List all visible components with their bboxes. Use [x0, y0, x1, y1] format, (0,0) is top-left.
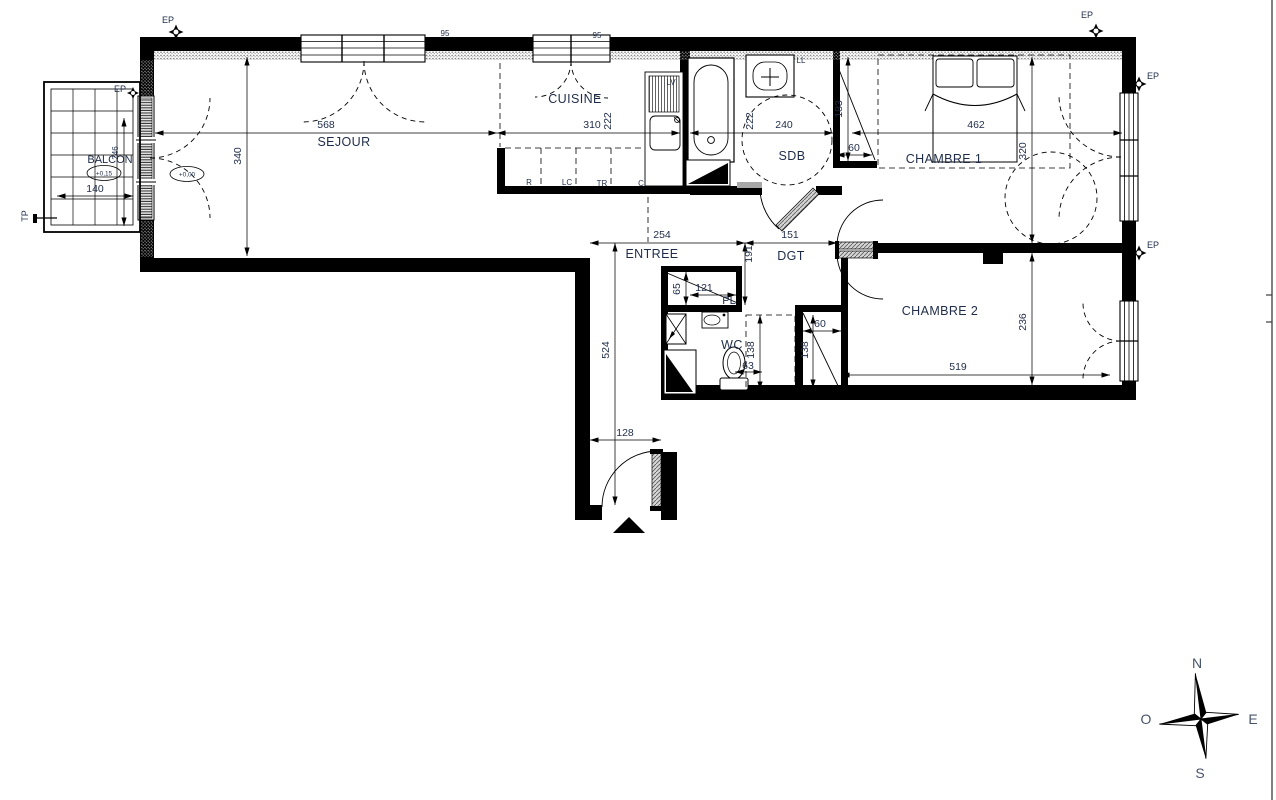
tag-refrigerator: R [526, 178, 532, 187]
level-balcon: +0,15 [96, 171, 113, 178]
dim-closet2-width: 60 [814, 318, 826, 330]
door-leaf-chambre1 [837, 242, 877, 249]
dim-cuisine-width: 310 [583, 119, 601, 131]
chambre1-window-swing [1059, 95, 1121, 219]
pillow [977, 59, 1014, 87]
tag-tr: TR [597, 179, 608, 188]
dim-balcon-width: 140 [86, 183, 104, 195]
floor-plan-sheet: TP [0, 0, 1276, 800]
dim-sdb-width: 240 [775, 119, 793, 131]
compass-south-label: S [1195, 765, 1204, 781]
dim-chambre2-depth: 236 [1017, 313, 1029, 331]
turning-circle-chambre1 [1005, 152, 1097, 244]
floor-plan-drawing: TP [0, 0, 1276, 800]
duct-bath [686, 160, 730, 186]
washbasin-sdb [746, 55, 794, 97]
window-sejour [301, 35, 425, 62]
room-label-chambre1: CHAMBRE 1 [906, 152, 983, 166]
compass-north-label: N [1192, 655, 1202, 671]
ep-label: EP [114, 84, 126, 94]
dim-hall-depth: 524 [600, 341, 612, 359]
room-label-cuisine: CUISINE [548, 92, 602, 106]
compass-east-label: E [1248, 711, 1257, 727]
door-swing-sdb [760, 191, 779, 229]
compass-rose: N O E S [1141, 655, 1258, 781]
ep-icon [1089, 24, 1104, 39]
tag-cooker: C [638, 179, 644, 188]
threshold-sdb [737, 182, 762, 188]
door-leaf-chambre2 [837, 251, 877, 258]
tp-label: TP [20, 210, 30, 222]
turning-circle-sdb [742, 95, 832, 185]
room-label-dgt: DGT [777, 249, 805, 263]
dim-wc-depth: 138 [745, 341, 757, 359]
tag-dishwasher: LV [666, 78, 676, 87]
dim-entrance-door: 128 [616, 427, 634, 439]
room-label-sdb: SDB [779, 149, 806, 163]
washbasin-wc [702, 312, 728, 328]
dim-closet2-depth: 138 [799, 341, 811, 359]
entrance-arrow [613, 517, 645, 533]
radiator [983, 253, 1003, 264]
dim-chambre1-width: 462 [967, 119, 985, 131]
ep-label: EP [1081, 10, 1093, 20]
room-label-pl: PL [722, 295, 735, 307]
room-label-sejour: SEJOUR [317, 135, 370, 149]
dim-sejour-width: 568 [317, 119, 335, 131]
tp-marker: TP [20, 210, 57, 223]
kitchen-sink-unit [645, 72, 683, 186]
dim-sejour-depth: 340 [232, 147, 244, 165]
dim-sdb-depth: 222 [744, 112, 756, 130]
door-leaf-entrance [652, 452, 661, 509]
bed [925, 56, 1025, 162]
dim-wc-width: 63 [742, 360, 754, 372]
ep-label: EP [1147, 240, 1159, 250]
dim-dgt-width: 151 [781, 229, 799, 241]
sheet-border [1266, 0, 1272, 800]
level-sejour: +0,00 [179, 172, 196, 179]
tag-lc: LC [562, 178, 572, 187]
room-label-chambre2: CHAMBRE 2 [902, 304, 979, 318]
dim-niche-width: 60 [848, 142, 860, 154]
shaft-box [666, 314, 686, 344]
dim-window1-height: 95 [441, 29, 450, 38]
ep-label: EP [162, 15, 174, 25]
dim-dgt-depth: 191 [743, 245, 755, 263]
sejour-window-swing [303, 61, 425, 122]
dim-pl-depth: 65 [671, 283, 683, 295]
dim-pl-width: 121 [695, 282, 713, 294]
chambre2-window-swing [1083, 303, 1121, 379]
dim-chambre2-width: 519 [949, 361, 967, 373]
dim-niche-depth: 183 [833, 100, 845, 118]
balcony-door-swing [150, 98, 210, 218]
dim-chambre1-depth: 320 [1017, 142, 1029, 160]
door-swing-chambre1 [837, 200, 883, 246]
dimension-texts: 568 340 310 222 240 222 183 60 462 320 2… [86, 29, 1029, 439]
window-chambre1 [1120, 93, 1138, 221]
dim-window2-height: 95 [593, 31, 602, 40]
tag-washer: LL [797, 56, 806, 65]
compass-west-label: O [1141, 711, 1152, 727]
duct-wc [664, 350, 696, 394]
ep-label: EP [1147, 71, 1159, 81]
room-label-balcon: BALCON [87, 154, 132, 166]
door-leaf-sdb [776, 188, 819, 231]
room-label-wc: WC [721, 338, 743, 352]
window-chambre2 [1120, 301, 1138, 381]
door-swing-entrance [602, 451, 658, 507]
dim-entree-width: 254 [653, 229, 671, 241]
bathtub [688, 58, 734, 162]
room-label-entree: ENTREE [625, 247, 678, 261]
dim-cuisine-depth: 222 [602, 112, 614, 130]
pillow [936, 59, 973, 87]
